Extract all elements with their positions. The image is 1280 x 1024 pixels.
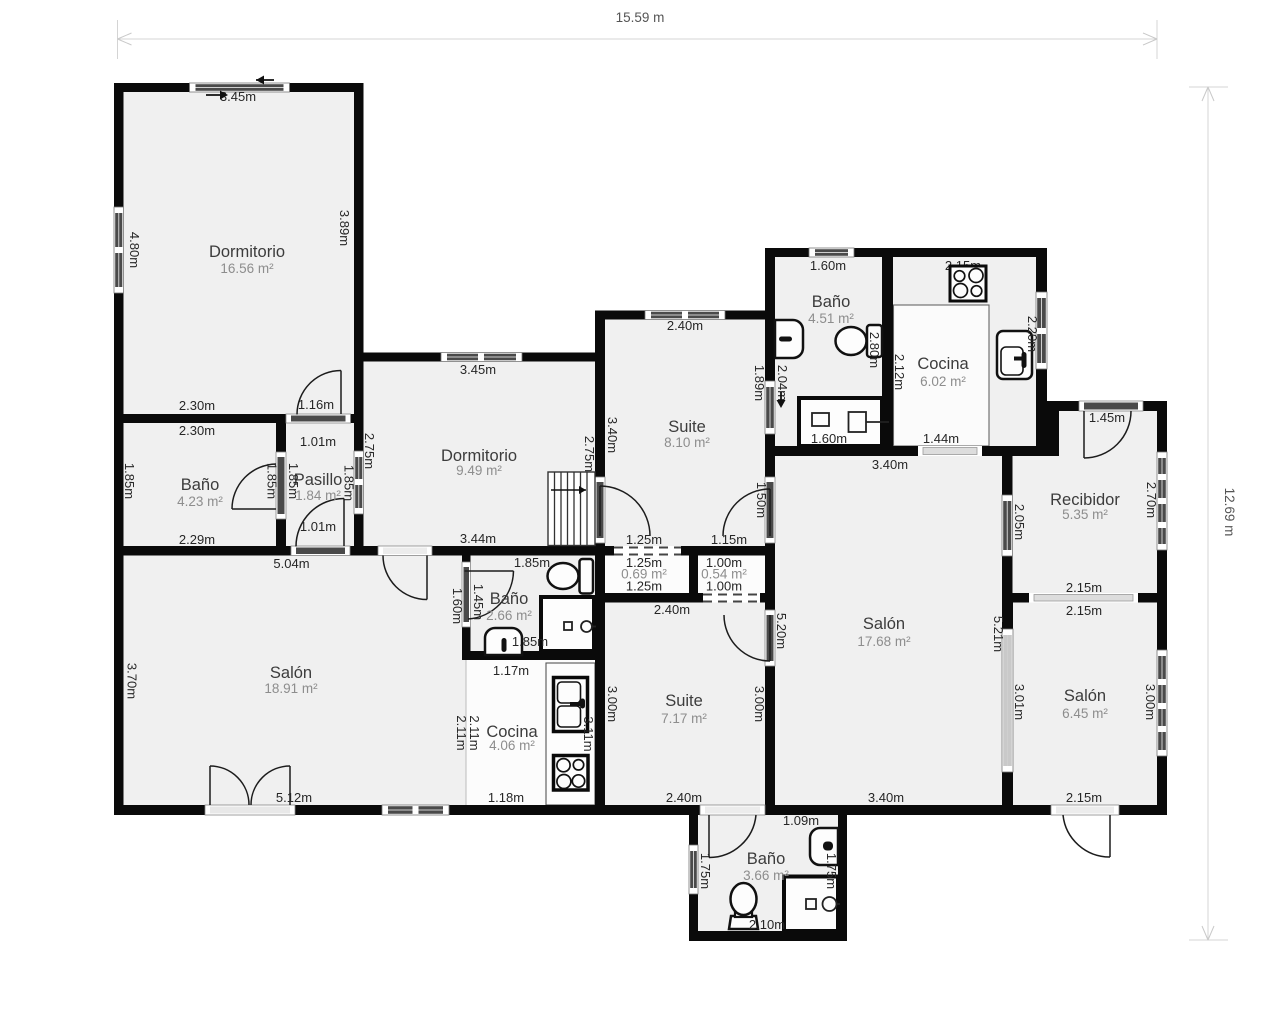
- svg-text:16.56 m²: 16.56 m²: [220, 261, 274, 276]
- svg-text:9.49 m²: 9.49 m²: [456, 463, 502, 478]
- svg-text:8.10 m²: 8.10 m²: [664, 435, 710, 450]
- svg-text:1.85m: 1.85m: [342, 465, 357, 501]
- svg-text:2.75m: 2.75m: [362, 433, 377, 469]
- svg-text:3.00m: 3.00m: [605, 686, 620, 722]
- svg-text:1.45m: 1.45m: [471, 584, 486, 620]
- svg-text:2.05m: 2.05m: [1012, 504, 1027, 540]
- svg-text:2.12m: 2.12m: [892, 354, 907, 390]
- svg-text:1.60m: 1.60m: [811, 431, 847, 446]
- svg-text:1.89m: 1.89m: [752, 365, 767, 401]
- svg-text:4.51 m²: 4.51 m²: [808, 311, 854, 326]
- svg-text:2.66 m²: 2.66 m²: [486, 608, 532, 623]
- svg-text:4.06 m²: 4.06 m²: [489, 738, 535, 753]
- svg-text:18.91 m²: 18.91 m²: [264, 681, 318, 696]
- svg-text:1.44m: 1.44m: [923, 431, 959, 446]
- svg-text:2.15m: 2.15m: [1066, 580, 1102, 595]
- svg-text:2.40m: 2.40m: [654, 602, 690, 617]
- svg-text:1.60m: 1.60m: [450, 588, 465, 624]
- svg-text:2.10m: 2.10m: [749, 917, 785, 932]
- svg-text:3.45m: 3.45m: [220, 89, 256, 104]
- svg-text:2.20m: 2.20m: [1025, 316, 1040, 352]
- svg-text:1.01m: 1.01m: [300, 519, 336, 534]
- svg-text:5.12m: 5.12m: [276, 790, 312, 805]
- svg-text:1.01m: 1.01m: [300, 434, 336, 449]
- svg-text:Baño: Baño: [490, 590, 529, 608]
- svg-text:2.30m: 2.30m: [179, 398, 215, 413]
- svg-text:2.04m: 2.04m: [775, 365, 790, 401]
- svg-text:7.17 m²: 7.17 m²: [661, 711, 707, 726]
- svg-text:1.16m: 1.16m: [298, 397, 334, 412]
- svg-text:2.40m: 2.40m: [666, 790, 702, 805]
- svg-text:6.45 m²: 6.45 m²: [1062, 706, 1108, 721]
- svg-text:3.40m: 3.40m: [605, 417, 620, 453]
- svg-text:Salón: Salón: [863, 615, 905, 633]
- svg-text:15.59 m: 15.59 m: [616, 10, 665, 25]
- svg-text:3.66 m²: 3.66 m²: [743, 868, 789, 883]
- svg-text:17.68 m²: 17.68 m²: [857, 634, 911, 649]
- svg-text:3.70m: 3.70m: [125, 663, 140, 699]
- svg-text:1.25m: 1.25m: [626, 579, 662, 594]
- svg-text:1.85m: 1.85m: [512, 634, 548, 649]
- svg-text:1.85m: 1.85m: [122, 463, 137, 499]
- svg-text:1.17m: 1.17m: [493, 663, 529, 678]
- svg-text:5.35 m²: 5.35 m²: [1062, 507, 1108, 522]
- svg-text:4.80m: 4.80m: [127, 232, 142, 268]
- svg-text:1.45m: 1.45m: [1089, 410, 1125, 425]
- svg-text:6.02 m²: 6.02 m²: [920, 374, 966, 389]
- svg-text:2.70m: 2.70m: [1144, 482, 1159, 518]
- svg-text:2.15m: 2.15m: [1066, 790, 1102, 805]
- svg-text:Baño: Baño: [181, 476, 220, 494]
- svg-text:2.80m: 2.80m: [867, 332, 882, 368]
- svg-text:3.45m: 3.45m: [460, 362, 496, 377]
- svg-text:2.11m: 2.11m: [467, 715, 482, 750]
- svg-text:3.44m: 3.44m: [460, 531, 496, 546]
- svg-text:1.09m: 1.09m: [783, 813, 819, 828]
- svg-text:12.69 m: 12.69 m: [1222, 488, 1237, 537]
- svg-text:5.04m: 5.04m: [273, 556, 309, 571]
- svg-text:Suite: Suite: [668, 418, 706, 436]
- svg-text:1.18m: 1.18m: [488, 790, 524, 805]
- svg-text:3.01m: 3.01m: [1012, 684, 1027, 720]
- svg-text:2.29m: 2.29m: [179, 532, 215, 547]
- svg-text:1.85m: 1.85m: [286, 463, 301, 499]
- svg-text:Baño: Baño: [812, 293, 851, 311]
- svg-text:3.00m: 3.00m: [1143, 684, 1158, 720]
- svg-text:2.15m: 2.15m: [1066, 603, 1102, 618]
- svg-text:3.89m: 3.89m: [337, 210, 352, 246]
- svg-text:1.00m: 1.00m: [706, 579, 742, 594]
- svg-text:2.11m: 2.11m: [454, 715, 469, 750]
- svg-text:5.20m: 5.20m: [774, 613, 789, 649]
- svg-text:3.11m: 3.11m: [581, 716, 596, 751]
- svg-text:1.60m: 1.60m: [810, 258, 846, 273]
- svg-text:Baño: Baño: [747, 850, 786, 868]
- svg-text:1.84 m²: 1.84 m²: [295, 488, 341, 503]
- svg-text:3.00m: 3.00m: [752, 686, 767, 722]
- svg-text:3.40m: 3.40m: [868, 790, 904, 805]
- svg-text:1.50m: 1.50m: [754, 482, 769, 518]
- svg-text:2.30m: 2.30m: [179, 423, 215, 438]
- svg-text:1.75m: 1.75m: [824, 853, 839, 889]
- svg-text:Cocina: Cocina: [917, 355, 969, 373]
- svg-text:5.21m: 5.21m: [991, 616, 1006, 652]
- svg-text:1.85m: 1.85m: [265, 463, 280, 499]
- svg-text:1.15m: 1.15m: [711, 532, 747, 547]
- svg-text:1.75m: 1.75m: [698, 853, 713, 889]
- svg-text:1.25m: 1.25m: [626, 532, 662, 547]
- svg-text:Salón: Salón: [270, 664, 312, 682]
- svg-text:2.40m: 2.40m: [667, 318, 703, 333]
- svg-text:4.23 m²: 4.23 m²: [177, 494, 223, 509]
- svg-text:1.85m: 1.85m: [514, 555, 550, 570]
- svg-text:Dormitorio: Dormitorio: [209, 243, 285, 261]
- svg-text:Suite: Suite: [665, 692, 703, 710]
- svg-text:2.75m: 2.75m: [582, 436, 597, 472]
- svg-text:3.40m: 3.40m: [872, 457, 908, 472]
- svg-text:Salón: Salón: [1064, 687, 1106, 705]
